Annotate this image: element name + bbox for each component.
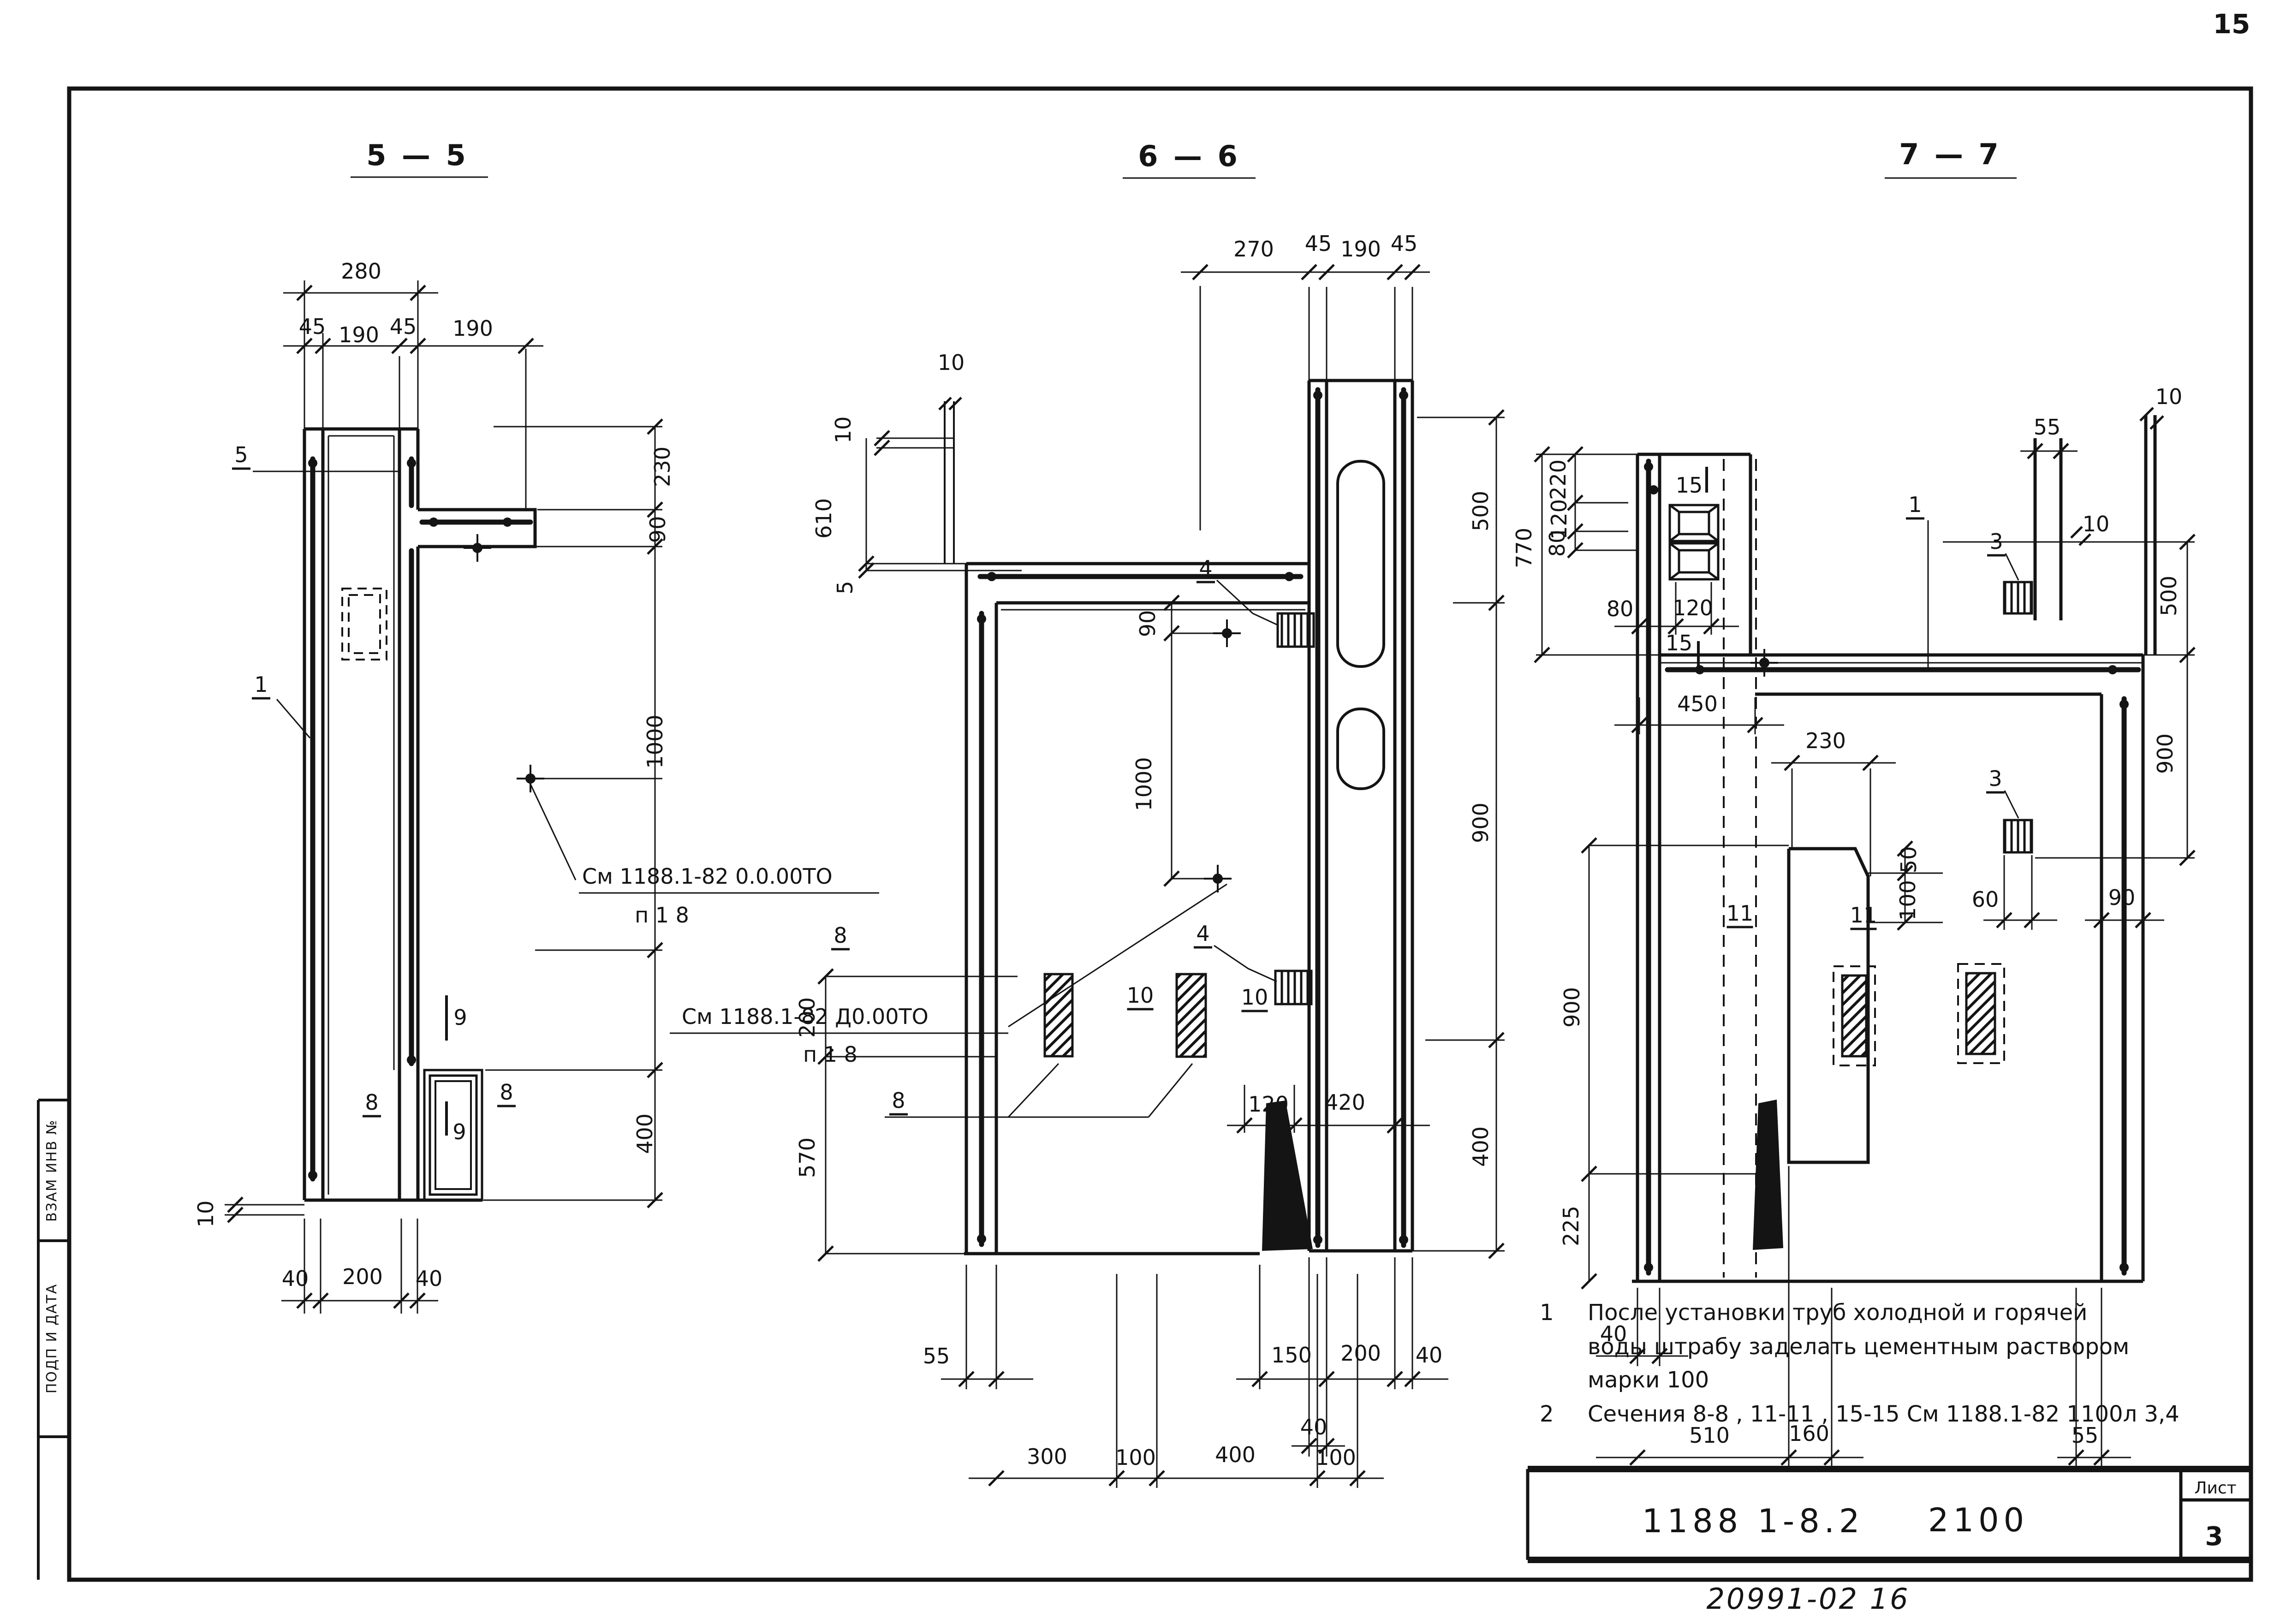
s5-dim-280: 280 [341, 259, 381, 284]
s6-dim-10-left: 10 [831, 416, 856, 444]
stamp-cell-podp: ПОДП И ДАТА [44, 1284, 60, 1394]
s5-dim-10-bottom: 10 [193, 1201, 218, 1228]
s5-dim-90: 90 [645, 516, 670, 543]
s6-dimension-lines [670, 178, 1505, 1488]
s5-dim-1000: 1000 [643, 714, 667, 768]
s7-dim-450: 450 [1677, 691, 1718, 716]
s7-dim-90: 90 [2108, 885, 2136, 910]
s5-pos-1: 1 [254, 672, 268, 697]
drawing-sheet: 15 ВЗАМ ИНВ № ПОДП И ДАТА 1188 1-8.2 210… [0, 0, 2292, 1624]
s7-pos-11-right: 11 [1850, 903, 1877, 928]
s7-dim-900-left: 900 [1560, 987, 1584, 1028]
s6-pos-10-left: 10 [1127, 983, 1154, 1008]
s6-chase-wedge [1262, 1101, 1313, 1251]
s7-anchor-plate-top [2004, 582, 2032, 613]
s5-dim-400: 400 [632, 1113, 657, 1154]
s6-pos-10-right: 10 [1241, 985, 1268, 1010]
s6-title: 6 — 6 [1138, 139, 1240, 173]
dimension-labels: 5 — 5280451904519052309010004001См 1188.… [193, 137, 2182, 1470]
s5-title: 5 — 5 [366, 138, 468, 172]
s7-pos-3-top: 3 [1989, 529, 2003, 554]
s7-dim-50: 50 [1896, 846, 1921, 874]
s5-dim-200: 200 [342, 1264, 383, 1289]
s7-pos-11-left: 11 [1726, 901, 1754, 926]
s7-rebar [1649, 461, 2138, 1273]
s5-rebar [313, 459, 530, 1179]
s7-anchor-plate-bottom [2004, 820, 2032, 852]
stamp-cell-vzam: ВЗАМ ИНВ № [44, 1119, 60, 1222]
s6-dim-200-bottom: 200 [1340, 1341, 1381, 1366]
s5-ref-sub: п 1 8 [635, 903, 689, 928]
s6-pipe-sleeve-1 [1338, 461, 1384, 666]
s6-pos-4-top: 4 [1199, 556, 1212, 581]
s6-pipe-sleeve-2 [1338, 709, 1384, 789]
s6-dim-100-b: 100 [1316, 1445, 1356, 1470]
s6-dim-100-a: 100 [1115, 1445, 1156, 1470]
s6-dim-1000: 1000 [1131, 757, 1156, 811]
s5-pos-8-left: 8 [365, 1090, 378, 1115]
s6-dim-300: 300 [1027, 1444, 1067, 1469]
s7-dim-60: 60 [1972, 887, 1999, 912]
s6-dim-55: 55 [923, 1344, 950, 1368]
s5-dim-40-right: 40 [416, 1266, 443, 1291]
s6-walls [964, 381, 1412, 1254]
s7-dim-120-h: 120 [1673, 595, 1713, 620]
s6-dim-270: 270 [1233, 237, 1274, 262]
s6-dim-400: 400 [1468, 1126, 1493, 1167]
note-1-num: 1 [1540, 1300, 1554, 1326]
s7-dim-40: 40 [1600, 1321, 1627, 1346]
s6-embed-plate-right [1177, 974, 1206, 1057]
s6-dim-570: 570 [795, 1137, 820, 1178]
s7-dim-770: 770 [1512, 528, 1536, 568]
s7-dim-220: 220 [1546, 459, 1571, 500]
notes: 1 После установки труб холодной и горяче… [1540, 1300, 2179, 1427]
title-block-doc-number: 1188 1-8.2 [1642, 1502, 1864, 1540]
s6-dim-45-right: 45 [1391, 231, 1418, 256]
s5-blockout-dashed [342, 589, 387, 660]
s5-pos-9-top: 9 [453, 1005, 467, 1030]
rebar-dots [308, 391, 2129, 1272]
s6-dim-200-left: 200 [795, 997, 820, 1038]
s6-dim-150: 150 [1271, 1343, 1312, 1368]
s5-dim-40-left: 40 [282, 1266, 309, 1291]
s6-dim-5: 5 [833, 581, 857, 594]
s6-dim-40-right: 40 [1416, 1343, 1443, 1368]
s5-pos-9-door: 9 [452, 1119, 466, 1144]
s7-pos-15-top: 15 [1676, 473, 1703, 498]
s6-ref-sub: п 1 8 [803, 1042, 857, 1067]
s5-ref: См 1188.1-82 0.0.00ТО [582, 864, 833, 889]
s7-title: 7 — 7 [1899, 137, 2001, 171]
s7-pos-1: 1 [1908, 492, 1922, 517]
s7-dim-510: 510 [1689, 1423, 1730, 1448]
s6-top-gap-lines [945, 401, 954, 564]
s5-dim-190-right: 190 [452, 316, 493, 341]
note-1-line-1: После установки труб холодной и горячей [1588, 1300, 2087, 1326]
s7-chase-wedge [1753, 1100, 1783, 1250]
s5-pos-8-right: 8 [500, 1080, 513, 1105]
s7-walls [1632, 415, 2155, 1281]
s7-hidden-embeds [1834, 964, 2004, 1065]
section-7-7 [1536, 178, 2195, 1468]
title-block-sheet-label: Лист [2194, 1479, 2236, 1498]
s7-dim-230: 230 [1805, 728, 1846, 753]
s7-dim-80-h: 80 [1607, 596, 1634, 621]
s6-dim-40-low: 40 [1300, 1415, 1328, 1440]
title-block-frame [1528, 1469, 2250, 1560]
s6-dim-120: 120 [1248, 1092, 1289, 1117]
blueprint-canvas: 15 ВЗАМ ИНВ № ПОДП И ДАТА 1188 1-8.2 210… [0, 0, 2292, 1624]
s6-dim-500: 500 [1468, 491, 1493, 531]
note-1-line-3: марки 100 [1588, 1367, 1709, 1393]
s7-dim-55-bottom: 55 [2072, 1423, 2099, 1448]
s7-dim-55-top: 55 [2034, 415, 2061, 440]
s7-dim-100: 100 [1895, 880, 1920, 921]
title-block-sheet-number: 3 [2205, 1522, 2223, 1552]
s7-dim-225: 225 [1559, 1206, 1584, 1246]
s5-dim-45-right: 45 [390, 314, 417, 339]
s7-vent-block [1670, 505, 1718, 579]
s6-pos-8-top: 8 [833, 923, 847, 948]
page-number: 15 [2213, 8, 2250, 40]
s7-dimension-lines [1536, 178, 2195, 1468]
s7-dim-80-left: 80 [1545, 530, 1570, 557]
s6-dim-10-top: 10 [938, 350, 965, 375]
s6-dim-420: 420 [1325, 1090, 1365, 1115]
anchor-point-markers [464, 534, 1778, 892]
note-2-num: 2 [1540, 1401, 1554, 1427]
s6-pos-8-bottom: 8 [892, 1088, 905, 1113]
s5-dim-190-mid: 190 [339, 322, 379, 347]
s5-thin-lines [328, 436, 394, 1195]
s6-dim-90: 90 [1135, 610, 1160, 637]
s5-dim-45-left: 45 [299, 314, 326, 339]
s6-dim-45-left: 45 [1305, 231, 1332, 256]
section-6-6 [670, 178, 1505, 1488]
s6-dim-610: 610 [811, 498, 836, 539]
s6-dim-400-b: 400 [1215, 1442, 1256, 1467]
s7-pos-15-mid: 15 [1666, 631, 1693, 655]
s7-dim-160: 160 [1789, 1421, 1829, 1446]
s6-dim-900: 900 [1468, 803, 1493, 843]
s7-dim-10-right: 10 [2155, 384, 2183, 409]
s6-anchor-plate-bottom [1275, 971, 1311, 1004]
s7-dim-900-right: 900 [2153, 733, 2178, 774]
s6-embed-plate-left [1045, 974, 1072, 1056]
title-block-scale: 2100 [1928, 1501, 2029, 1539]
s5-pos-5: 5 [234, 442, 248, 467]
handwritten-mark: 20991-02 16 [1706, 1582, 1910, 1616]
s7-pos-3-bottom: 3 [1988, 766, 2002, 791]
s6-anchor-plate-top [1278, 613, 1314, 647]
s7-dim-500: 500 [2156, 576, 2181, 616]
s5-dim-230: 230 [650, 446, 675, 487]
s7-dim-10-small: 10 [2083, 512, 2110, 536]
s6-dim-190: 190 [1340, 237, 1381, 262]
s6-pos-4-bottom: 4 [1196, 921, 1209, 946]
